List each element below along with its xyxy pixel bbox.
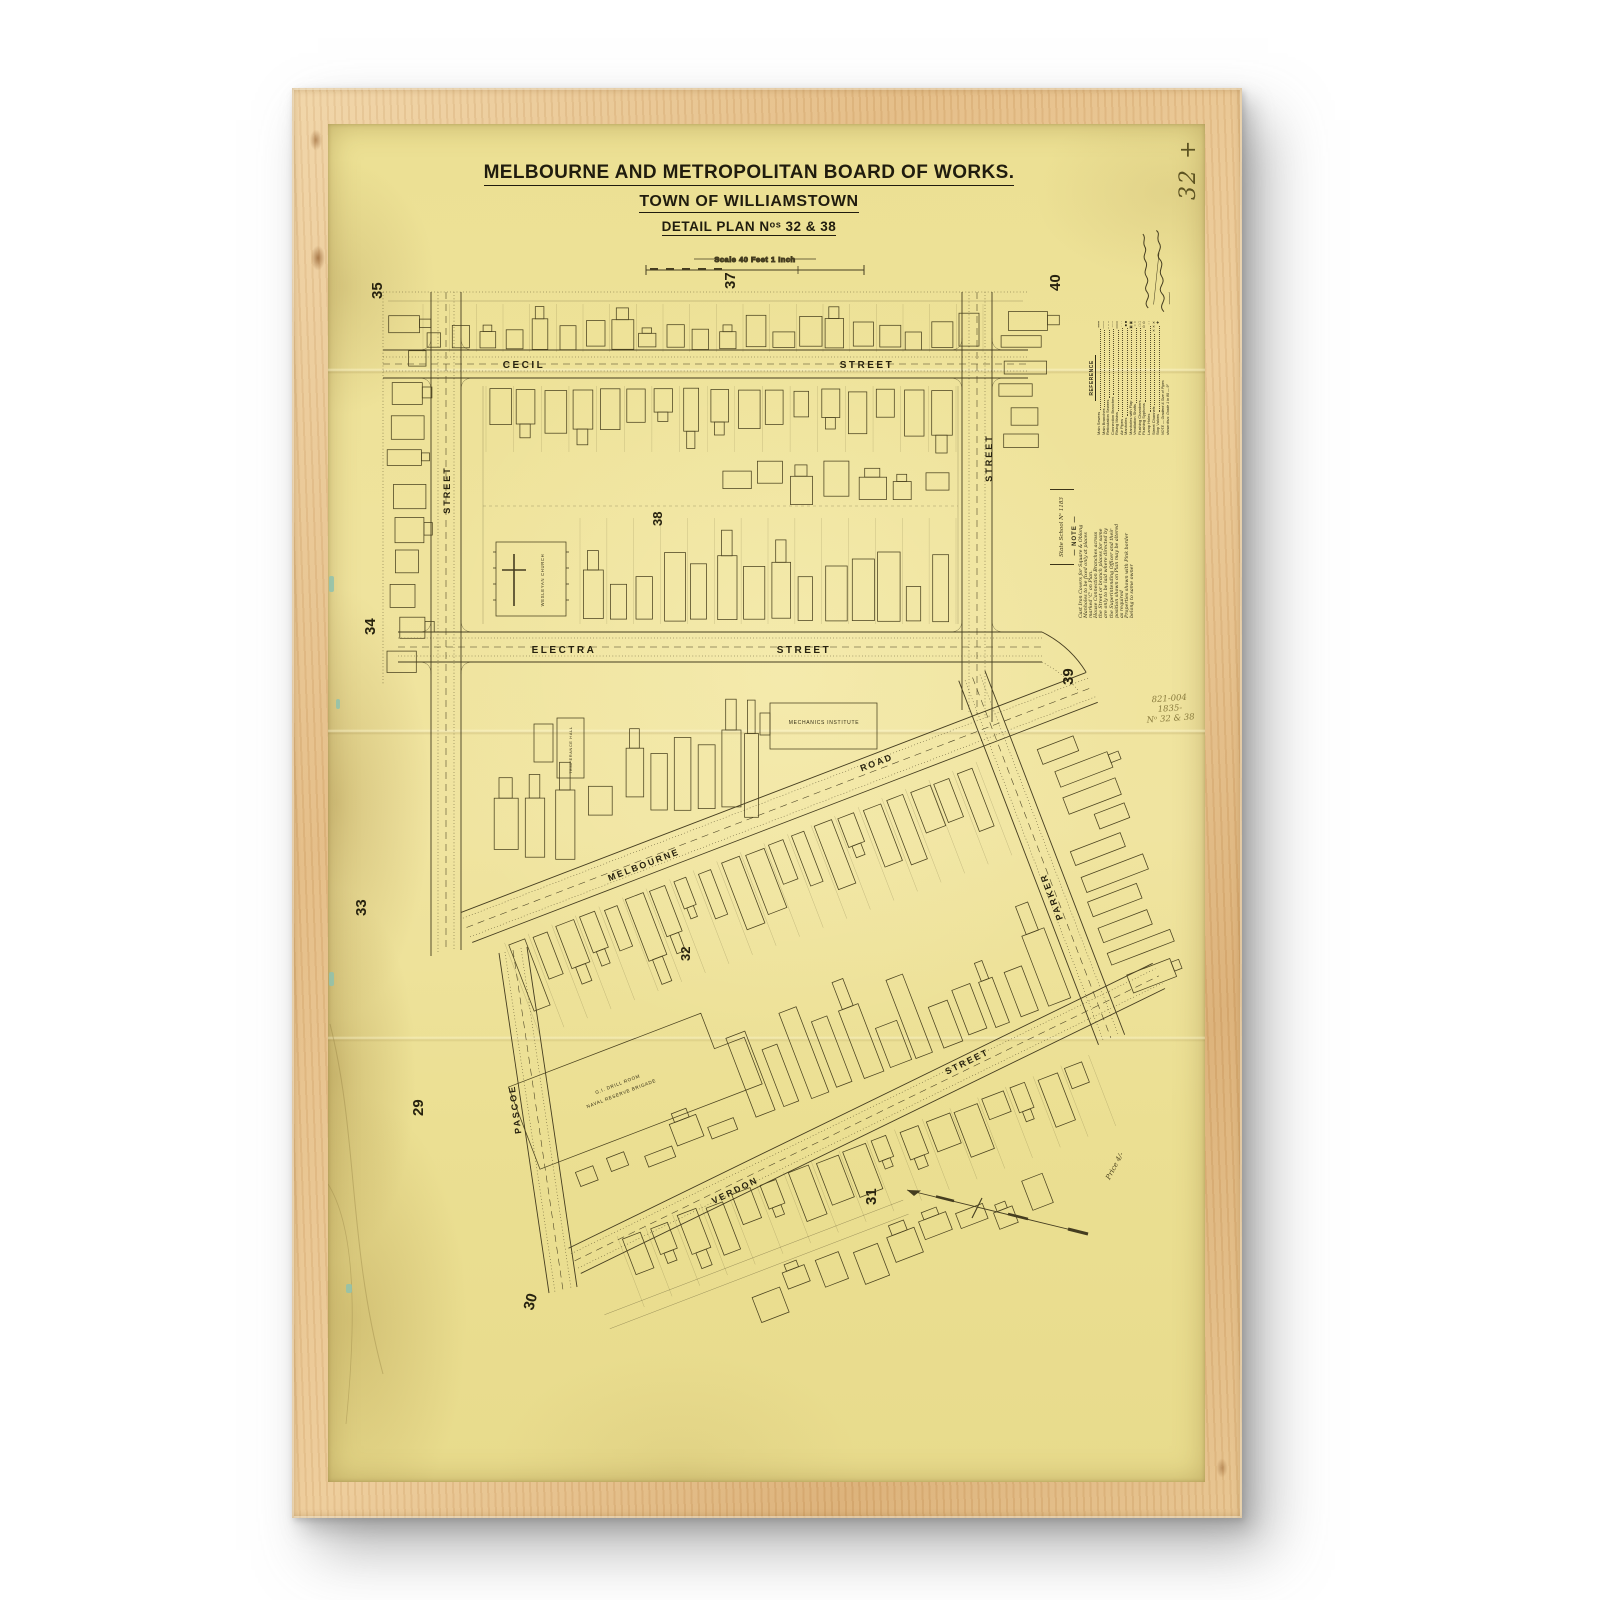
- paper-damage-spot: [336, 699, 340, 709]
- scale-label: Scale 40 Feet 1 Inch: [714, 255, 795, 264]
- svg-text:31: 31: [863, 1188, 880, 1205]
- paper-damage-spot: [346, 1284, 352, 1293]
- svg-text:40: 40: [1047, 274, 1064, 291]
- map-title-line3: DETAIL PLAN Nᵒˢ 32 & 38: [662, 219, 837, 236]
- svg-text:35: 35: [369, 282, 386, 299]
- church-cross-icon: [502, 554, 526, 606]
- map-title-block: MELBOURNE AND METROPOLITAN BOARD OF WORK…: [469, 162, 1029, 236]
- paper-damage-spot: [329, 972, 334, 986]
- drill-hall: G.I. DRILL ROOM NAVAL RESERVE BRIGADE: [508, 1002, 762, 1169]
- street-label-electra-street: STREET: [777, 645, 831, 656]
- street-label-right-street: STREET: [984, 434, 994, 482]
- building-footprints: [617, 1055, 1116, 1307]
- svg-text:38: 38: [650, 512, 665, 526]
- building-footprints: [486, 386, 956, 453]
- building-footprints: [626, 699, 758, 817]
- building-footprints: [999, 312, 1059, 448]
- handwritten-corner-number: 32 +: [1176, 130, 1205, 200]
- block-numbers: 38 32: [650, 512, 693, 961]
- building-footprints: [423, 304, 983, 352]
- legend-footer-line: shown thus: Grade 1 in 80 — 9″: [1166, 321, 1170, 435]
- svg-text:29: 29: [410, 1099, 427, 1116]
- street-label-pascoe: PASCOE: [507, 1084, 524, 1134]
- paper-damage-spot: [329, 576, 334, 592]
- wooden-picture-frame: VERDON STREET G.I. DRILL ROOM NAVAL RESE…: [292, 88, 1242, 1518]
- svg-text:34: 34: [362, 618, 379, 635]
- temperance-hall-label: TEMPERANCE HALL: [569, 726, 573, 773]
- state-school-label: State School Nᵒ 1183: [1050, 489, 1074, 565]
- building-footprints: [723, 461, 949, 504]
- svg-text:37: 37: [722, 272, 739, 289]
- reference-legend: REFERENCE Main Sewers━━━Main Branches───…: [1089, 321, 1173, 435]
- building-footprints: [580, 518, 956, 624]
- map-sheet: VERDON STREET G.I. DRILL ROOM NAVAL RESE…: [328, 124, 1205, 1482]
- street-label-cecil-street: STREET: [840, 360, 894, 371]
- street-linework: [383, 292, 1086, 956]
- map-svg: VERDON STREET G.I. DRILL ROOM NAVAL RESE…: [328, 124, 1205, 1482]
- state-school-text: State School Nᵒ 1183: [1059, 497, 1065, 557]
- pencil-reference-note: 821-004 1835- Nᵒ 32 & 38: [1133, 692, 1205, 727]
- street-label-left-street: STREET: [442, 466, 452, 514]
- legend-title: REFERENCE: [1089, 355, 1096, 401]
- building-footprints: [745, 1167, 1056, 1324]
- paper-creases: [328, 1024, 383, 1424]
- building-footprints: [1030, 723, 1201, 997]
- street-label-cecil: CECIL: [503, 360, 546, 371]
- building-footprints: [494, 762, 612, 859]
- photo-background: VERDON STREET G.I. DRILL ROOM NAVAL RESE…: [0, 0, 1600, 1600]
- scale-bar: Scale 40 Feet 1 Inch: [646, 255, 864, 275]
- map-title-line1: MELBOURNE AND METROPOLITAN BOARD OF WORK…: [484, 162, 1015, 186]
- north-arrow: [907, 1190, 1088, 1234]
- church-label: WESLEYAN CHURCH: [540, 554, 545, 607]
- legend-footer-line: NOTE — Gradient & Size of Pipes: [1161, 321, 1165, 435]
- street-label-verdon: VERDON: [710, 1175, 760, 1206]
- wesleyan-church: WESLEYAN CHURCH: [493, 542, 569, 616]
- temperance-hall: TEMPERANCE HALL: [534, 718, 584, 778]
- note-block: — NOTE — Cast Iron Covers for Square & O…: [1072, 453, 1134, 618]
- svg-text:39: 39: [1060, 668, 1077, 685]
- map-title-line2: TOWN OF WILLIAMSTOWN: [639, 193, 858, 213]
- building-footprints: [719, 900, 1071, 1120]
- note-line: belong to same owner: [1130, 453, 1135, 618]
- mechanics-institute-label: MECHANICS INSTITUTE: [789, 720, 860, 726]
- surveyor-signatures: [1135, 229, 1177, 312]
- building-footprints: [387, 316, 434, 673]
- svg-text:32: 32: [678, 947, 693, 961]
- corner-number-text: 32 +: [1176, 139, 1201, 200]
- svg-text:30: 30: [520, 1292, 541, 1313]
- mechanics-institute: MECHANICS INSTITUTE: [760, 703, 877, 749]
- svg-text:33: 33: [353, 899, 370, 916]
- legend-entry: Stop Valves✚: [1156, 321, 1161, 435]
- street-label-melbourne-road: ROAD: [859, 752, 895, 774]
- street-label-electra: ELECTRA: [532, 645, 597, 656]
